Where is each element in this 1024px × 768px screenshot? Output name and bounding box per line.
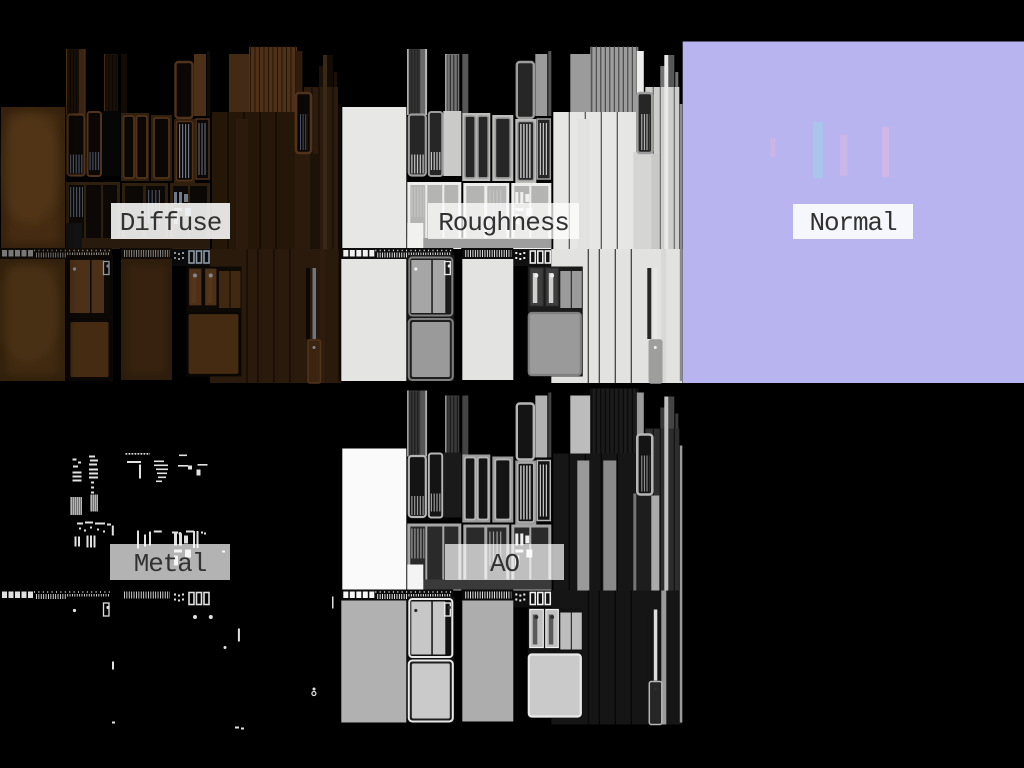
svg-text:Roughness: Roughness xyxy=(438,208,569,238)
svg-text:Metal: Metal xyxy=(134,549,207,579)
svg-text:Diffuse: Diffuse xyxy=(120,208,222,238)
svg-text:AO: AO xyxy=(490,549,520,579)
svg-text:Normal: Normal xyxy=(809,208,897,238)
